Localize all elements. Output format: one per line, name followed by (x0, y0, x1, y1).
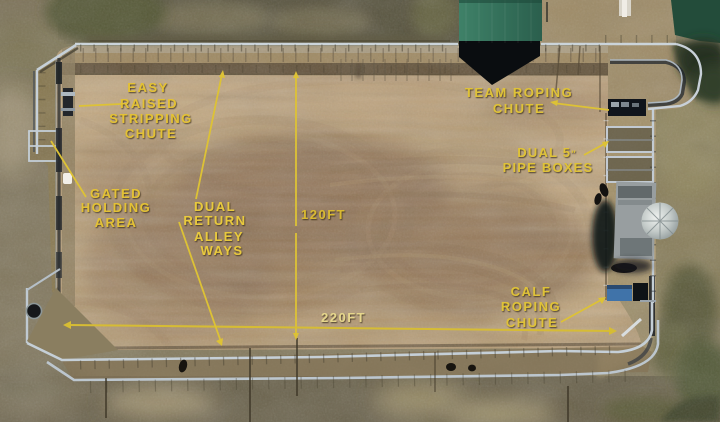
svg-text:EASY: EASY (127, 80, 168, 95)
svg-text:CALF: CALF (511, 284, 552, 299)
svg-text:RETURN: RETURN (183, 213, 246, 228)
svg-text:GATED: GATED (90, 186, 142, 201)
svg-text:PIPE BOXES: PIPE BOXES (503, 160, 594, 175)
svg-text:STRIPPING: STRIPPING (109, 111, 193, 126)
svg-text:TEAM ROPING: TEAM ROPING (465, 85, 573, 100)
svg-text:CHUTE: CHUTE (493, 101, 545, 116)
svg-text:ROPING: ROPING (501, 299, 561, 314)
svg-text:CHUTE: CHUTE (125, 126, 177, 141)
svg-text:DUAL 5″: DUAL 5″ (517, 145, 576, 160)
svg-text:RAISED: RAISED (120, 96, 178, 111)
svg-text:CHUTE: CHUTE (506, 315, 558, 330)
svg-text:120FT: 120FT (301, 207, 346, 222)
svg-text:HOLDING: HOLDING (81, 200, 151, 215)
svg-text:ALLEY: ALLEY (194, 229, 244, 244)
svg-text:WAYS: WAYS (200, 243, 243, 258)
svg-text:DUAL: DUAL (194, 199, 236, 214)
svg-text:220FT: 220FT (321, 310, 366, 325)
svg-text:AREA: AREA (95, 215, 138, 230)
